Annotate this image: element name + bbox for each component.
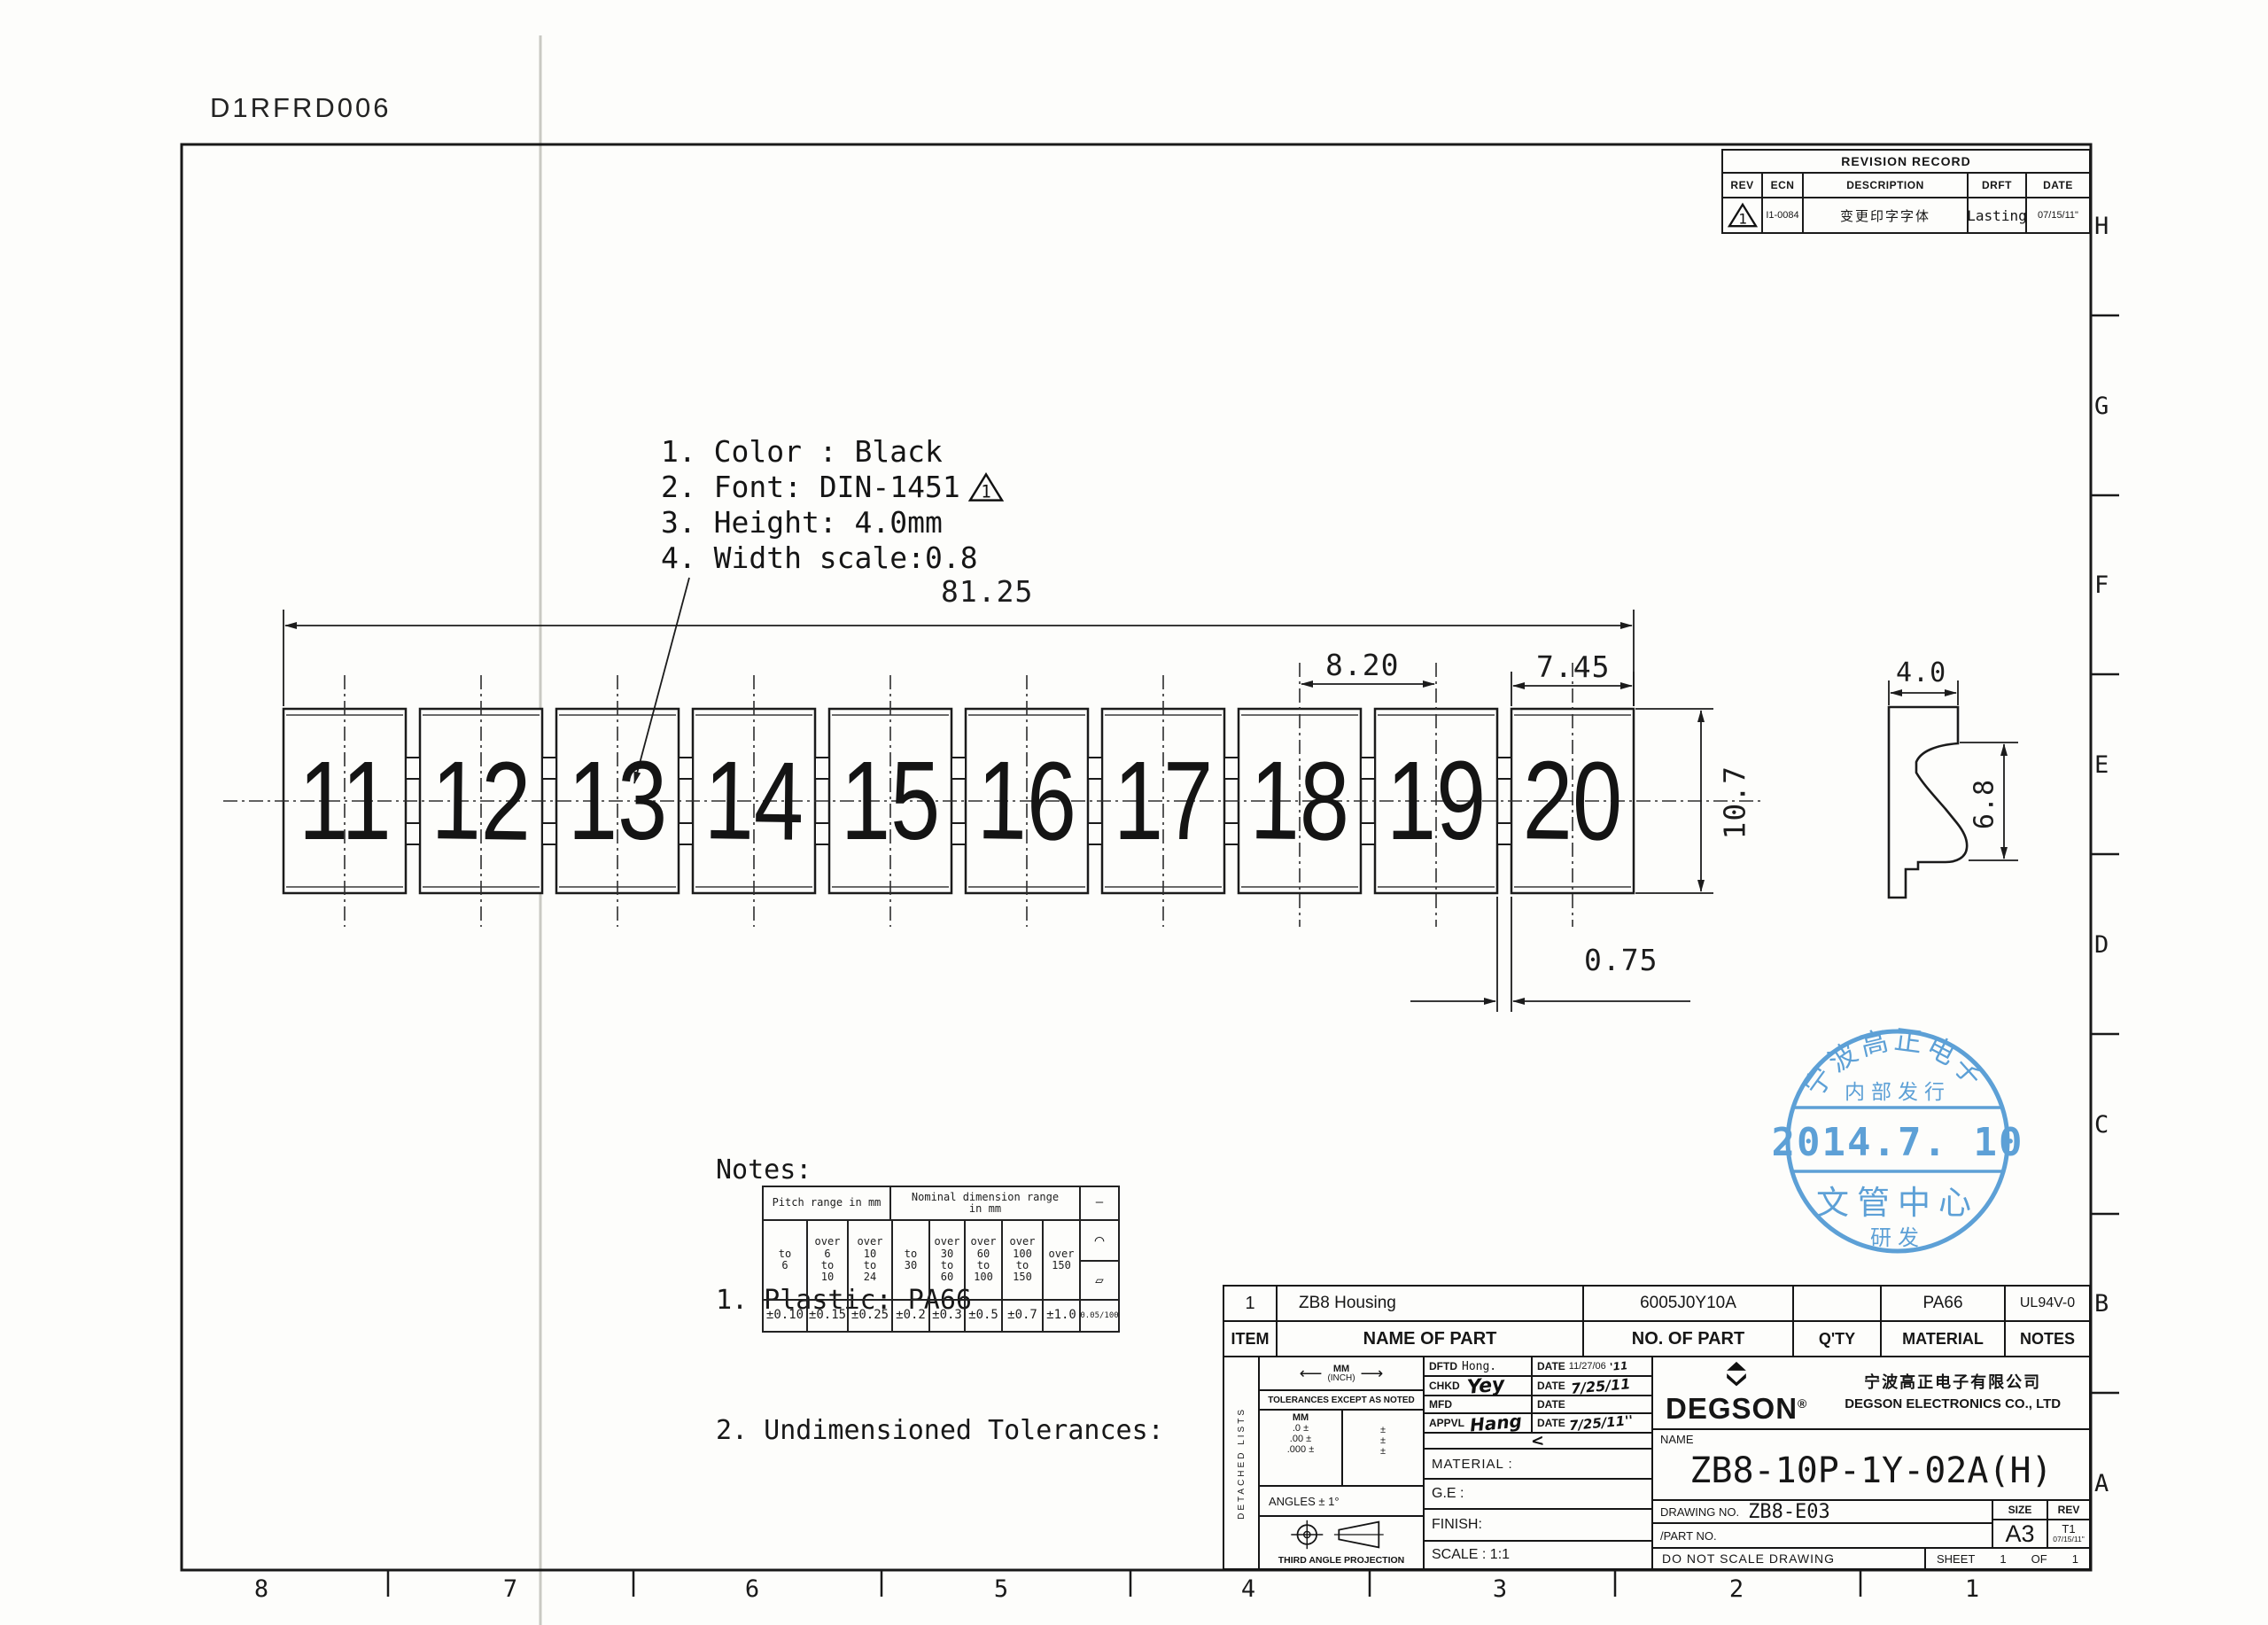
dim-label-profile-height: 6.8 [1969, 773, 2000, 836]
nominal-col: to 30 [891, 1219, 930, 1301]
sheet-number: 1 [2000, 1552, 2006, 1566]
appvl-date: 7/25/11'' [1568, 1412, 1634, 1434]
nominal-col: over 100 to 150 [1001, 1219, 1044, 1301]
tol-row: .00 ± [1290, 1434, 1311, 1444]
tol-value: ±0.3 [928, 1299, 966, 1333]
marker-cell: 20 [1511, 709, 1634, 893]
description-value: 变更印字字体 [1802, 197, 1969, 234]
pm-sign: ± [1380, 1435, 1386, 1446]
drft-value: Lasting [1967, 197, 2027, 234]
tol-value: ±1.0 [1042, 1299, 1081, 1333]
zone-number: 4 [1241, 1575, 1255, 1603]
check-row: < [1423, 1432, 1653, 1450]
arc-symbol: ⌒ [1079, 1219, 1120, 1262]
scale-field: SCALE : 1:1 [1423, 1540, 1653, 1570]
do-not-scale: DO NOT SCALE DRAWING [1651, 1547, 1926, 1570]
header-name: NAME OF PART [1276, 1320, 1584, 1357]
print-note-line: 2. Font: DIN-1451 1 [661, 470, 1005, 505]
zone-letter: C [2094, 1111, 2109, 1139]
revision-triangle-icon: 1 [967, 471, 1005, 503]
header-item: ITEM [1223, 1320, 1278, 1357]
title-block: 1 ZB8 Housing 6005J0Y10A PA66 UL94V-0 IT… [1223, 1285, 2091, 1570]
rev-date: 07/15/11" [2053, 1536, 2084, 1543]
part-item-no: 1 [1223, 1285, 1278, 1322]
rev-label: REV [2047, 1499, 2091, 1520]
units-inch: (INCH) [1327, 1374, 1355, 1383]
drawing-no-value: ZB8-E03 [1748, 1501, 1830, 1523]
dftd-label: DFTD [1429, 1360, 1457, 1372]
zone-number: 3 [1493, 1575, 1507, 1603]
zone-number: 6 [745, 1575, 759, 1603]
sheet-label: SHEET [1937, 1552, 1975, 1566]
chkd-date: 7/25/11 [1570, 1375, 1631, 1397]
part-number: 6005J0Y10A [1582, 1285, 1794, 1322]
dim-label-marker-width: 7.45 [1536, 649, 1610, 684]
tol-row: .0 ± [1293, 1423, 1309, 1434]
of-number: 1 [2072, 1552, 2078, 1566]
part-material: PA66 [1880, 1285, 2006, 1322]
sheet-cell: SHEET 1 OF 1 [1924, 1547, 2091, 1570]
nominal-range-header: Nominal dimension range in mm [889, 1186, 1081, 1221]
dftd-date: 11/27/06 [1569, 1361, 1606, 1372]
ge-field: G.E : [1423, 1478, 1653, 1510]
zone-number: 7 [503, 1575, 517, 1603]
marker-number: 15 [841, 745, 940, 857]
company-name-en: DEGSON ELECTRONICS CO., LTD [1845, 1395, 2061, 1415]
part-name-value: ZB8-10P-1Y-02A(H) [1653, 1438, 2089, 1491]
chkd-date-cell: DATE 7/25/11 [1531, 1375, 1653, 1396]
stamp-bottom-text: 研发 [1870, 1225, 1925, 1250]
marker-number: 20 [1522, 744, 1622, 858]
stamp-inner-top: 内部发行 [1845, 1081, 1951, 1104]
tol-value: 0.05/100 [1079, 1299, 1120, 1333]
rev-value: T1 [2062, 1523, 2075, 1536]
dftd-value: Hong. [1462, 1360, 1496, 1373]
dim-label-overall: 81.25 [941, 574, 1033, 609]
marker-number: 14 [703, 744, 804, 858]
zone-letter: E [2094, 751, 2109, 779]
dim-label-profile-width: 4.0 [1896, 657, 1946, 688]
nominal-col: over 30 to 60 [928, 1219, 966, 1301]
print-note-line: 4. Width scale:0.8 [661, 540, 1005, 576]
units-mm: MM [1333, 1365, 1349, 1374]
appvl-date-cell: DATE 7/25/11'' [1531, 1412, 1653, 1434]
drawing-no-cell: DRAWING NO. ZB8-E03 [1651, 1499, 1993, 1524]
dim-overall [283, 610, 1634, 706]
pm-sign: ± [1380, 1425, 1386, 1435]
drawing-sheet: 宁波高正电子 内部发行 2014.7. 10 文管中心 研发 D1RFRD006… [0, 0, 2268, 1625]
parallelism-symbol: ▱ [1079, 1260, 1120, 1301]
part-no-row: /PART NO. [1651, 1522, 1993, 1549]
tol-value: ±0.2 [891, 1299, 930, 1333]
marker-cell: 19 [1375, 709, 1497, 893]
tolerances-note: TOLERANCES EXCEPT AS NOTED [1258, 1389, 1425, 1411]
stamp-date: 2014.7. 10 [1772, 1120, 2024, 1165]
date-col-header: DATE [2025, 172, 2091, 198]
dim-label-pitch: 8.20 [1325, 648, 1399, 682]
degson-wordmark: DEGSON [1666, 1392, 1798, 1425]
material-field: MATERIAL : [1423, 1448, 1653, 1480]
part-notes: UL94V-0 [2004, 1285, 2091, 1322]
company-block: DEGSON® 宁波高正电子有限公司 DEGSON ELECTRONICS CO… [1651, 1356, 2091, 1430]
third-angle-projection-icon [1284, 1519, 1399, 1555]
nominal-col: over 150 [1042, 1219, 1081, 1301]
marker-number: 19 [1386, 745, 1486, 857]
marker-cell: 12 [420, 709, 542, 893]
tol-value: ±0.7 [1001, 1299, 1044, 1333]
company-name-cn: 宁波高正电子有限公司 [1864, 1371, 2041, 1395]
marker-cell: 18 [1239, 709, 1361, 893]
zone-letter: H [2094, 213, 2109, 240]
projection-label: THIRD ANGLE PROJECTION [1278, 1555, 1405, 1566]
marker-number: 16 [976, 744, 1076, 858]
appvl-cell: APPVL Hang [1423, 1412, 1533, 1434]
pitch-col: over 10 to 24 [847, 1219, 893, 1301]
appvl-label: APPVL [1429, 1417, 1464, 1429]
degson-logo: DEGSON® [1666, 1361, 1807, 1426]
detached-lists-label: DETACHED LISTS [1237, 1407, 1247, 1520]
part-qty [1792, 1285, 1882, 1322]
date-label: DATE [1537, 1380, 1565, 1392]
svg-text:1: 1 [981, 481, 991, 501]
straightness-symbol: — [1079, 1186, 1120, 1221]
units-cell: ⟵ MM (INCH) ⟶ [1258, 1356, 1425, 1391]
drft-col-header: DRFT [1967, 172, 2027, 198]
marker-cell: 16 [966, 709, 1088, 893]
pitch-col: over 6 to 10 [806, 1219, 849, 1301]
marker-cell: 14 [693, 709, 815, 893]
marker-cell: 17 [1102, 709, 1224, 893]
drawing-no-label: DRAWING NO. [1660, 1505, 1739, 1519]
date-label: DATE [1537, 1360, 1565, 1372]
nominal-col: over 60 to 100 [964, 1219, 1003, 1301]
svg-text:1: 1 [1738, 210, 1747, 227]
marker-cell: 11 [283, 709, 406, 893]
tol-value: ±0.5 [964, 1299, 1003, 1333]
document-code: D1RFRD006 [210, 92, 391, 124]
notes-item: 2. Undimensioned Tolerances: [716, 1409, 1164, 1452]
finish-field: FINISH: [1423, 1508, 1653, 1542]
size-value: A3 [1992, 1519, 2048, 1549]
header-qty: Q'TY [1792, 1320, 1882, 1357]
chkd-label: CHKD [1429, 1380, 1460, 1392]
tolerance-table: Pitch range in mm Nominal dimension rang… [762, 1186, 1120, 1333]
rev-value-cell: T1 07/15/11" [2047, 1519, 2091, 1549]
zone-letter: F [2094, 571, 2109, 599]
of-label: OF [2031, 1552, 2047, 1566]
marker-number: 11 [299, 745, 392, 857]
rev-flag-cell: 1 [1721, 197, 1763, 234]
pitch-col: to 6 [762, 1219, 808, 1301]
stamp-band-text: 文管中心 [1816, 1184, 1979, 1222]
print-note-text: 2. Font: DIN-1451 [661, 470, 960, 505]
dim-label-strip-height: 10.7 [1718, 769, 1752, 840]
rev-col-header: REV [1721, 172, 1763, 198]
zone-number: 2 [1729, 1575, 1744, 1603]
zone-letter: B [2094, 1290, 2109, 1318]
zone-letter: G [2094, 393, 2109, 420]
print-note-line: 1. Color : Black [661, 434, 1005, 470]
mfd-date-cell: DATE [1531, 1395, 1653, 1414]
degson-logo-icon [1723, 1361, 1750, 1392]
mm-head: MM [1293, 1412, 1309, 1423]
header-notes: NOTES [2004, 1320, 2091, 1357]
zone-letter: A [2094, 1470, 2109, 1497]
chkd-cell: CHKD Yey [1423, 1375, 1533, 1396]
date-value: 07/15/11" [2025, 197, 2091, 234]
ecn-value: I1-0084 [1761, 197, 1804, 234]
tol-value: ±0.15 [806, 1299, 849, 1333]
revision-triangle-icon: 1 [1728, 202, 1758, 229]
arrow-right-icon: ⟶ [1361, 1365, 1384, 1383]
marker-number: 18 [1249, 744, 1349, 858]
header-part-no: NO. OF PART [1582, 1320, 1794, 1357]
tol-value: ±0.25 [847, 1299, 893, 1333]
dftd-cell: DFTD Hong. [1423, 1356, 1533, 1377]
dftd-date-cell: DATE 11/27/06 '11 [1531, 1356, 1653, 1377]
zone-number: 8 [254, 1575, 268, 1603]
marker-number: 13 [568, 745, 667, 857]
dftd-date-hand: '11 [1609, 1359, 1628, 1373]
description-col-header: DESCRIPTION [1802, 172, 1969, 198]
print-notes: 1. Color : Black 2. Font: DIN-1451 1 3. … [661, 434, 1005, 576]
print-note-line: 3. Height: 4.0mm [661, 505, 1005, 540]
inch-tolerance-col: ± ± ± [1341, 1409, 1425, 1487]
zone-number: 5 [994, 1575, 1008, 1603]
name-block: NAME ZB8-10P-1Y-02A(H) [1651, 1428, 2091, 1501]
name-label: NAME [1660, 1433, 1694, 1446]
ecn-col-header: ECN [1761, 172, 1804, 198]
mm-tolerance-col: MM .0 ± .00 ± .000 ± [1258, 1409, 1343, 1487]
header-material: MATERIAL [1880, 1320, 2006, 1357]
part-name: ZB8 Housing [1276, 1285, 1584, 1322]
zone-letter: D [2094, 931, 2109, 959]
tol-row: .000 ± [1287, 1444, 1315, 1455]
arrow-left-icon: ⟵ [1300, 1365, 1323, 1383]
revision-title: REVISION RECORD [1721, 149, 2091, 174]
marker-number: 12 [431, 744, 531, 858]
tol-value: ±0.10 [762, 1299, 808, 1333]
angles-cell: ANGLES ± 1° [1258, 1485, 1425, 1517]
projection-cell: THIRD ANGLE PROJECTION [1258, 1515, 1425, 1570]
detached-lists-strip: DETACHED LISTS [1223, 1356, 1260, 1570]
registered-mark: ® [1798, 1396, 1807, 1411]
marker-cell: 13 [556, 709, 679, 893]
pitch-range-header: Pitch range in mm [762, 1186, 891, 1221]
profile-section [1889, 707, 1967, 898]
revision-record-table: REVISION RECORD REV ECN DESCRIPTION DRFT… [1721, 149, 2091, 234]
zone-number: 1 [1965, 1575, 1979, 1603]
marker-cell: 15 [829, 709, 951, 893]
marker-number: 17 [1114, 745, 1213, 857]
dim-label-gap: 0.75 [1584, 943, 1658, 977]
pm-sign: ± [1380, 1446, 1386, 1457]
approval-stamp: 宁波高正电子 内部发行 2014.7. 10 文管中心 研发 [1772, 1024, 2024, 1251]
size-label: SIZE [1992, 1499, 2048, 1520]
date-label: DATE [1537, 1417, 1565, 1429]
